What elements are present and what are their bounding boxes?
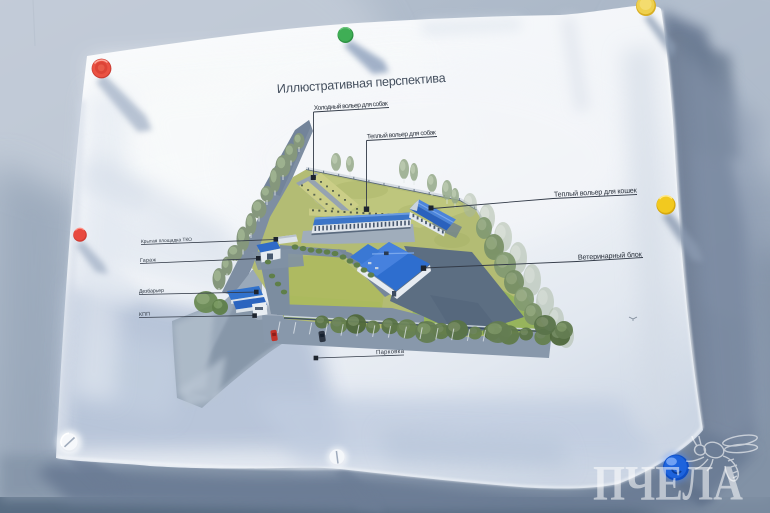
svg-text:Парковка: Парковка xyxy=(376,349,405,356)
svg-text:Дезбарьер: Дезбарьер xyxy=(139,288,164,295)
svg-text:ПЧЕЛА: ПЧЕЛА xyxy=(593,455,743,511)
svg-text:КПП: КПП xyxy=(139,312,151,318)
svg-text:Гараж: Гараж xyxy=(140,257,157,264)
